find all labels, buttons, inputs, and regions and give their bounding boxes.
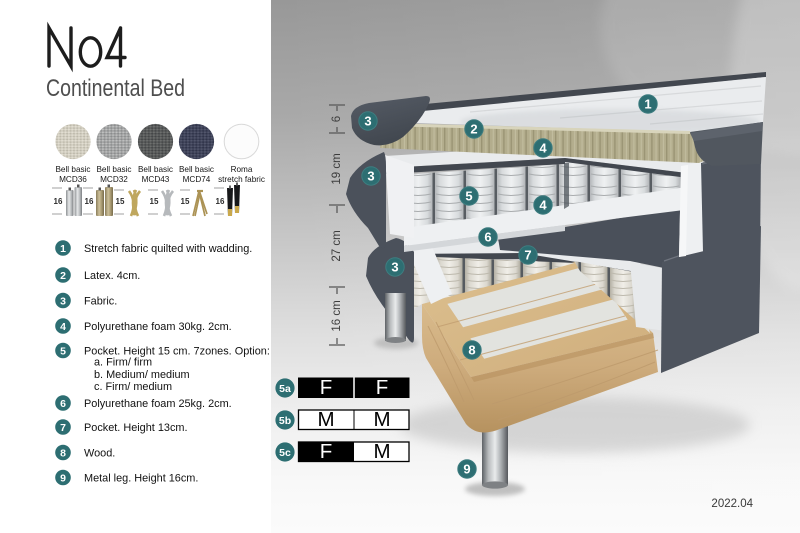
svg-text:15: 15 [150, 197, 159, 206]
svg-text:5: 5 [60, 345, 66, 357]
svg-text:5c: 5c [279, 447, 291, 459]
svg-text:2: 2 [470, 122, 477, 137]
svg-text:15: 15 [116, 197, 125, 206]
svg-text:7: 7 [60, 422, 66, 434]
svg-text:5b: 5b [279, 415, 291, 427]
svg-text:3: 3 [367, 169, 374, 184]
svg-text:6: 6 [60, 398, 66, 410]
svg-text:Fabric.: Fabric. [84, 295, 117, 307]
svg-text:M: M [373, 408, 390, 431]
svg-text:1: 1 [644, 97, 651, 112]
svg-text:F: F [320, 376, 333, 399]
svg-text:19 cm: 19 cm [331, 153, 343, 184]
svg-text:Polyurethane foam 30kg. 2cm.: Polyurethane foam 30kg. 2cm. [84, 321, 232, 333]
svg-text:9: 9 [463, 462, 470, 477]
svg-text:M: M [317, 408, 334, 431]
svg-text:3: 3 [391, 260, 398, 275]
svg-text:Roma: Roma [231, 165, 253, 174]
svg-text:15: 15 [181, 197, 190, 206]
svg-text:Bell basic: Bell basic [96, 165, 131, 174]
svg-text:Metal leg. Height 16cm.: Metal leg. Height 16cm. [84, 472, 198, 484]
svg-text:MCD32: MCD32 [100, 175, 128, 184]
svg-text:4: 4 [539, 198, 547, 213]
svg-text:M: M [373, 440, 390, 463]
svg-text:Wood.: Wood. [84, 447, 115, 459]
svg-text:Pocket. Height 13cm.: Pocket. Height 13cm. [84, 422, 188, 434]
svg-text:stretch fabric: stretch fabric [218, 175, 265, 184]
svg-text:Bell basic: Bell basic [138, 165, 173, 174]
svg-text:16: 16 [54, 197, 63, 206]
svg-text:Continental Bed: Continental Bed [46, 75, 185, 102]
svg-text:Pocket. Height 15 cm. 7zones.: Pocket. Height 15 cm. 7zones. Option: [84, 345, 270, 357]
svg-text:5: 5 [465, 189, 472, 204]
svg-text:16: 16 [85, 197, 94, 206]
svg-text:2022.04: 2022.04 [711, 498, 753, 510]
svg-text:b. Medium/ medium: b. Medium/ medium [94, 369, 190, 381]
svg-text:8: 8 [468, 343, 475, 358]
svg-text:Latex. 4cm.: Latex. 4cm. [84, 270, 140, 282]
svg-text:8: 8 [60, 447, 66, 459]
svg-text:5a: 5a [279, 383, 291, 395]
svg-text:16: 16 [216, 197, 225, 206]
svg-text:7: 7 [524, 248, 531, 263]
svg-text:6: 6 [484, 230, 491, 245]
svg-text:MCD43: MCD43 [142, 175, 170, 184]
svg-text:2: 2 [60, 270, 66, 282]
svg-text:Bell basic: Bell basic [179, 165, 214, 174]
svg-text:9: 9 [60, 472, 66, 484]
svg-text:Polyurethane foam 25kg. 2cm.: Polyurethane foam 25kg. 2cm. [84, 398, 232, 410]
svg-text:MCD74: MCD74 [183, 175, 211, 184]
svg-text:c. Firm/ medium: c. Firm/ medium [94, 381, 172, 393]
svg-text:3: 3 [364, 114, 371, 129]
svg-text:4: 4 [60, 321, 66, 333]
svg-text:a. Firm/ firm: a. Firm/ firm [94, 357, 152, 369]
svg-text:27 cm: 27 cm [331, 230, 343, 261]
svg-text:1: 1 [60, 243, 66, 255]
svg-text:6: 6 [331, 116, 343, 122]
svg-text:Bell basic: Bell basic [55, 165, 90, 174]
svg-text:3: 3 [60, 295, 66, 307]
svg-text:16 cm: 16 cm [331, 300, 343, 331]
svg-text:Stretch fabric quilted with wa: Stretch fabric quilted with wadding. [84, 243, 252, 255]
svg-text:MCD36: MCD36 [59, 175, 87, 184]
svg-text:F: F [320, 440, 333, 463]
svg-text:F: F [376, 376, 389, 399]
svg-text:4: 4 [539, 141, 547, 156]
